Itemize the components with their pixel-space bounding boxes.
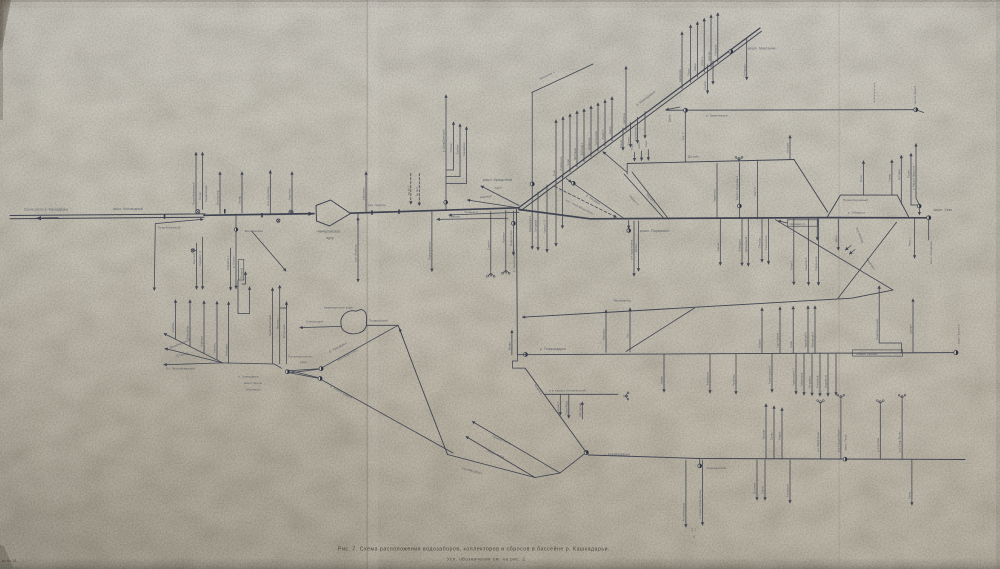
svg-text:(Папакшо): (Папакшо) (246, 388, 262, 392)
svg-text:Пармашин: Пармашин (559, 156, 563, 171)
svg-text:Хоскарлик: Хоскарлик (462, 141, 466, 156)
svg-text:Отводящий: Отводящий (306, 320, 323, 324)
svg-text:р-н Сечаэв: р-н Сечаэв (876, 437, 880, 452)
svg-text:кишл. Узяк: кишл. Узяк (934, 208, 953, 212)
svg-text:Чешлева: Чешлева (732, 374, 736, 386)
svg-text:Бофен: Бофен (758, 339, 762, 348)
svg-text:Сухое русло р. Кашкадарьи: Сухое русло р. Кашкадарьи (24, 208, 68, 212)
svg-text:р-в Карасу Кекабатский: р-в Карасу Кекабатский (549, 388, 586, 392)
svg-text:Хршик: Хршик (716, 242, 720, 251)
svg-text:р. Заамзевара: р. Заамзевара (706, 114, 728, 118)
svg-text:Хатир: Хатир (238, 195, 242, 204)
svg-text:Сан-Саклик: Сан-Саклик (776, 332, 780, 348)
svg-text:Пиле: Пиле (859, 175, 863, 182)
svg-text:Гаркрешина 1: Гаркрешина 1 (792, 368, 796, 386)
svg-text:вс № 18: вс № 18 (2, 559, 16, 563)
svg-text:Чагатай: Чагатай (762, 429, 766, 440)
svg-text:Аблана: Аблана (213, 343, 217, 353)
svg-text:Карасу Гиждаван 1: Карасу Гиждаван 1 (735, 175, 739, 200)
svg-text:Маришлока: Маришлока (509, 230, 513, 246)
svg-text:Да-гайт: Да-гайт (688, 155, 700, 159)
svg-text:Аэробат: Аэробат (288, 188, 292, 200)
svg-text:Л-г Льшябужанный: Л-г Льшябужанный (166, 367, 195, 371)
svg-text:Кара: Кара (644, 140, 648, 147)
svg-text:кишл. Пармачист: кишл. Пармачист (640, 229, 670, 233)
svg-text:Сайбан: Сайбан (171, 322, 175, 332)
svg-text:Кипр 1: Кипр 1 (700, 56, 704, 65)
svg-text:Дина: Дина (834, 235, 838, 242)
svg-text:Гитарная: Гитарная (534, 219, 538, 232)
svg-text:вдхр: вдхр (300, 360, 307, 364)
svg-text:Самех: Самех (888, 173, 892, 182)
svg-text:кишл. Кречь: кишл. Кречь (244, 381, 263, 385)
svg-text:Сиабат: Сиабат (703, 80, 707, 90)
svg-text:Карабулак: Карабулак (633, 126, 637, 141)
svg-text:Чишкаевский: Чишкаевский (706, 466, 726, 470)
svg-text:кан. Чархин: кан. Чархин (368, 203, 386, 207)
svg-text:Поира: Поира (619, 139, 623, 148)
svg-text:Балабасвая: Балабасвая (245, 229, 263, 233)
svg-text:Пятанбай: Пятанбай (816, 375, 820, 388)
svg-text:Чиявкая II: Чиявкая II (790, 222, 805, 226)
svg-text:р. Кекабатдарья: р. Кекабатдарья (604, 453, 630, 457)
svg-text:р. Абдарья: р. Абдарья (848, 210, 865, 214)
svg-text:Кипчак: Кипчак (707, 51, 711, 61)
svg-text:Гаптурды: Гаптурды (742, 64, 746, 77)
svg-text:кишл. Дзест: кишл. Дзест (913, 85, 917, 104)
svg-text:Гамкрешна: Гамкрешна (800, 372, 804, 387)
svg-text:Ходжамурган: Ходжамурган (428, 241, 432, 260)
svg-text:Чери: Чери (566, 158, 570, 165)
svg-text:вд № 6: вд № 6 (415, 186, 419, 196)
svg-text:Подводящий: Подводящий (369, 319, 388, 323)
svg-text:Китагалык: Китагалык (594, 130, 598, 144)
svg-text:Мавжо: Мавжо (778, 431, 782, 440)
svg-text:Ниглиджай: Ниглиджай (578, 402, 582, 417)
svg-text:Бибики: Бибики (456, 144, 460, 154)
svg-text:Тешкалтак: Тешкалтак (764, 235, 768, 250)
svg-text:кишл. Кумыртепа: кишл. Кумыртепа (483, 178, 512, 182)
svg-text:Исанкатар: Исанкатар (216, 190, 220, 205)
svg-text:Чимкурганское: Чимкурганское (317, 230, 341, 234)
svg-text:кан. Агмруэу: кан. Агмруэу (354, 244, 358, 262)
svg-text:кан. Карабаги: кан. Карабаги (266, 186, 270, 206)
svg-text:Чанклай 1: Чанклай 1 (804, 257, 808, 271)
svg-text:Джага: Джага (634, 244, 638, 252)
svg-text:Каратепа: Каратепа (362, 187, 366, 200)
svg-text:Мирмина: Мирмина (587, 137, 591, 150)
svg-text:Кардюкский: Кардюкский (204, 185, 208, 202)
svg-text:Гаркршина: Гаркршина (814, 256, 818, 271)
svg-text:Мелания: Мелания (753, 482, 757, 494)
svg-text:Чиявка II: Чиявка II (464, 210, 478, 214)
svg-text:Левый Талжас: Левый Талжас (856, 352, 878, 356)
svg-text:Базва: Базва (626, 137, 630, 145)
svg-text:Бешкина: Бешкина (808, 376, 812, 388)
svg-text:кишл. Катаган: кишл. Катаган (956, 324, 960, 344)
svg-text:Гурту: Гурту (686, 68, 690, 76)
svg-text:Колхозная: Колхозная (282, 324, 286, 338)
svg-text:Крибоза: Крибоза (622, 112, 626, 123)
svg-text:кишл. Беловодный: кишл. Беловодный (113, 207, 143, 211)
svg-text:Камашинское вдхр: Камашинское вдхр (324, 306, 353, 310)
svg-text:Мадверля: Мадверля (824, 375, 828, 388)
svg-text:Правобережный: Правобережный (875, 319, 879, 340)
svg-text:Сарой: Сарой (761, 485, 765, 494)
svg-text:Черкична: Черкична (713, 189, 717, 202)
svg-text:Чакпаклай II: Чакпаклай II (804, 332, 808, 348)
svg-text:Гаркрешина II: Гаркрешина II (768, 366, 772, 384)
svg-text:Рузак: Рузак (907, 170, 911, 178)
svg-text:Кленовка: Кленовка (224, 343, 228, 356)
svg-text:Пиан-Жкуб: Пиан-Жкуб (564, 400, 568, 415)
svg-text:Нагч II: Нагч II (753, 187, 757, 196)
svg-text:Правобережный: Правобережный (268, 315, 272, 336)
svg-text:Кипр: Кипр (637, 142, 641, 149)
svg-text:Джакдургак: Джакдургак (744, 236, 748, 252)
svg-text:׀ 2: ׀ 2 (691, 528, 696, 532)
svg-text:Лизаний: Лизаний (240, 267, 244, 278)
svg-text:Поир: Поир (630, 143, 634, 150)
svg-text:Банокат: Банокат (192, 252, 196, 264)
svg-text:Каврия: Каврия (449, 215, 460, 219)
svg-text:Сарист: Сарист (486, 239, 490, 250)
svg-text:Контейнерная: Контейнерная (682, 502, 686, 521)
svg-text:Катагай 1: Катагай 1 (580, 142, 584, 155)
svg-text:Уват 1: Уват 1 (908, 237, 912, 246)
svg-text:Лангкабал: Лангкабал (186, 325, 190, 339)
svg-text:Пистакия: Пистакия (573, 147, 577, 160)
svg-text:4: 4 (693, 535, 695, 539)
svg-text:р-н Татар-Бузак: р-н Татар-Бузак (898, 431, 902, 452)
svg-text:Галис: Галис (198, 192, 202, 200)
svg-text:кишл. Хазарнова: кишл. Хазарнова (929, 241, 933, 264)
svg-text:Лямб П: Лямб П (601, 130, 605, 140)
svg-text:Кутурма: Кутурма (897, 169, 901, 180)
svg-text:Мукимабад: Мукимабад (614, 299, 631, 303)
svg-text:р. Тюрко (Таган-Булак): р. Тюрко (Таган-Булак) (698, 490, 702, 519)
svg-text:Усл. обозначения см. на рис. 2: Усл. обозначения см. на рис. 2. (447, 557, 527, 562)
svg-text:Карлыга: Карлыга (602, 329, 606, 340)
svg-text:Правобережный: Правобережный (843, 198, 868, 202)
svg-text:Нуриват: Нуриват (501, 231, 505, 243)
svg-text:Дюба: Дюба (668, 114, 672, 122)
svg-text:кишл. Татар: кишл. Татар (844, 434, 848, 450)
svg-text:Рафибат 1: Рафибат 1 (226, 255, 230, 270)
svg-text:Рис. 7. Схема расположения в: Рис. 7. Схема расположения водозаборов, … (338, 546, 610, 553)
svg-text:Чакпаклай 1: Чакпаклай 1 (811, 332, 815, 348)
svg-text:Сктобаг: Сктобаг (758, 238, 762, 248)
svg-text:Караклова 1: Караклова 1 (528, 215, 532, 232)
svg-text:Чиругана: Чиругана (275, 318, 279, 330)
svg-text:кишл. Мирганчи: кишл. Мирганчи (748, 47, 776, 51)
svg-text:Халяри: Халяри (909, 324, 913, 334)
svg-text:Правобережный: Правобережный (192, 182, 196, 205)
svg-text:Карабат: Карабат (200, 335, 204, 347)
svg-text:р. Гузандарья: р. Гузандарья (238, 375, 259, 379)
svg-text:Тикабатти: Тикабатти (786, 483, 790, 497)
svg-text:р-н Закир-Бузак: р-н Закир-Бузак (816, 431, 820, 452)
svg-text:р. Таникатдарья: р. Таникатдарья (512, 250, 516, 272)
svg-text:Исвая: Исвая (660, 376, 664, 384)
svg-text:Акроб: Акроб (608, 126, 612, 134)
svg-text:Каракугла: Каракугла (706, 372, 710, 385)
svg-text:Саэво: Саэво (770, 432, 774, 440)
svg-text:р. Таникатдарья: р. Таникатдарья (540, 347, 566, 351)
svg-text:р. Карасу Ширэлэк: р. Карасу Ширэлэк (912, 165, 916, 190)
svg-text:кан. Г: кан. Г (681, 132, 685, 140)
svg-text:Рафибат II: Рафибат II (198, 251, 202, 266)
svg-text:Кинва: Кинва (508, 342, 512, 350)
svg-text:вдхр: вдхр (327, 236, 334, 240)
svg-text:Шина: Шина (693, 63, 697, 71)
svg-text:Калкин 1: Калкин 1 (556, 401, 560, 413)
svg-text:р. Казан: р. Казан (232, 256, 236, 268)
svg-text:Тузай 1: Тузай 1 (790, 260, 794, 270)
svg-text:кан Хайдак-Шраб: кан Хайдак-Шраб (837, 429, 841, 452)
svg-text:вд № 3: вд № 3 (406, 185, 410, 195)
svg-text:Патанкаронское: Патанкаронское (288, 355, 313, 359)
svg-text:Габирли: Габирли (714, 44, 718, 55)
svg-text:Хабирова: Хабирова (678, 69, 682, 82)
svg-text:Тисках: Тисках (449, 142, 453, 152)
svg-text:Поши: Поши (789, 340, 793, 348)
svg-text:Алкадант: Алкадант (738, 238, 742, 251)
svg-text:Халджа: Халджа (786, 142, 790, 153)
svg-text:Левобережный: Левобережный (158, 226, 181, 230)
svg-text:Туни: Туни (552, 169, 556, 176)
svg-text:р. ДжарДжикский: р. ДжарДжикский (441, 129, 445, 152)
svg-text:Чуршк 1 II: Чуршк 1 II (543, 219, 547, 233)
svg-text:Кул: Кул (626, 333, 630, 338)
svg-text:Татар: Татар (908, 491, 912, 499)
svg-text:р-я Гаркрешина: р-я Гаркрешина (630, 239, 634, 260)
